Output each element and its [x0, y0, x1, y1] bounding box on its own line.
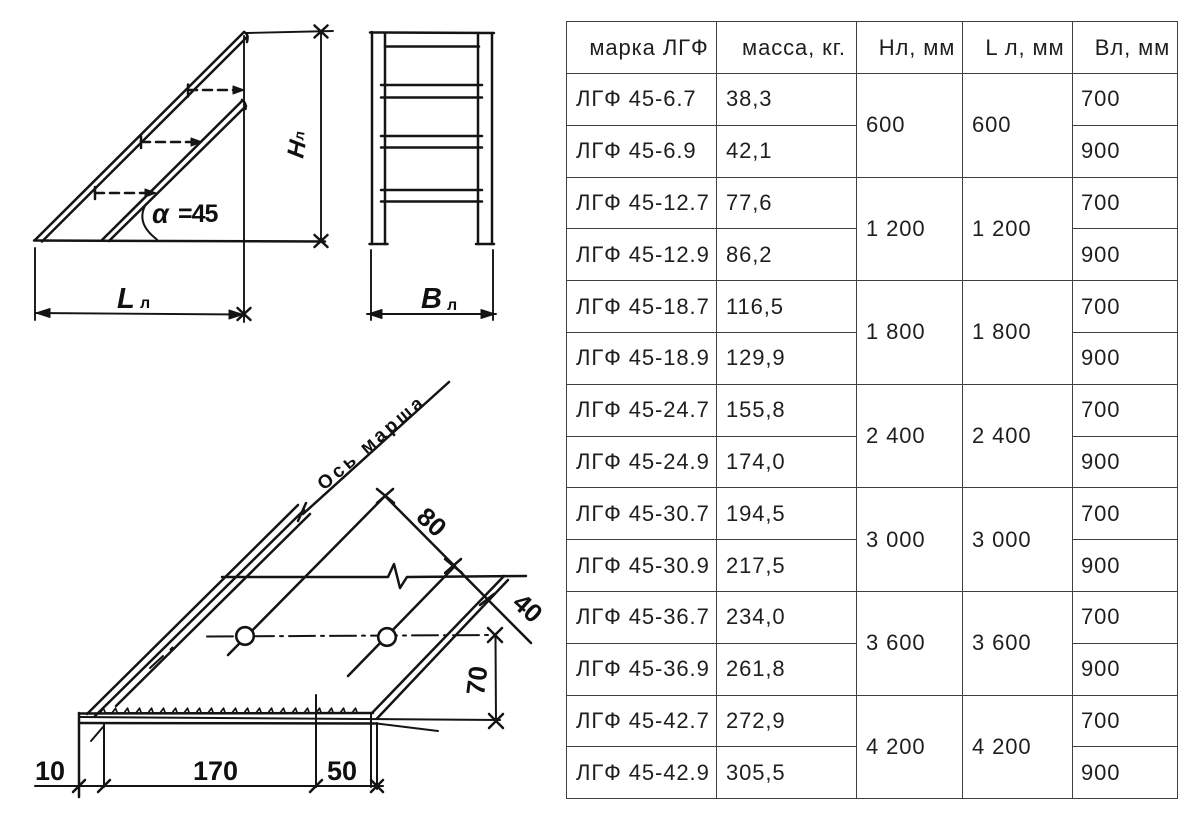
- svg-text:40: 40: [507, 587, 549, 629]
- svg-text:50: 50: [327, 756, 357, 786]
- svg-text:10: 10: [35, 756, 65, 786]
- svg-text:L: L: [117, 283, 135, 315]
- svg-text:α: α: [152, 199, 170, 229]
- svg-text:л: л: [290, 130, 307, 142]
- svg-text:70: 70: [460, 664, 493, 696]
- svg-text:л: л: [140, 295, 150, 312]
- svg-text:80: 80: [411, 501, 453, 543]
- svg-text:Ось марша: Ось марша: [314, 391, 431, 495]
- svg-text:B: B: [421, 283, 442, 315]
- svg-text:=45: =45: [178, 200, 219, 228]
- svg-text:H: H: [282, 138, 312, 160]
- svg-text:170: 170: [193, 756, 238, 786]
- svg-text:л: л: [447, 297, 457, 314]
